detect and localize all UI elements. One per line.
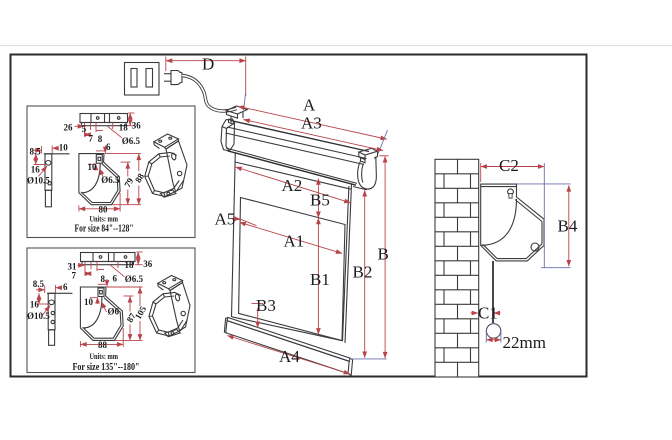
svg-text:36: 36 [143, 259, 153, 269]
svg-text:7: 7 [72, 271, 77, 281]
svg-text:16: 16 [31, 165, 41, 175]
svg-text:Ø6.5: Ø6.5 [125, 274, 144, 284]
svg-text:C2: C2 [499, 156, 519, 175]
svg-text:18: 18 [125, 260, 135, 270]
svg-text:Ø10.5: Ø10.5 [27, 176, 50, 186]
svg-text:8: 8 [98, 134, 103, 144]
svg-text:B1: B1 [310, 270, 330, 289]
svg-text:10: 10 [88, 162, 98, 172]
svg-text:B: B [378, 245, 389, 264]
svg-text:For size 135"--180": For size 135"--180" [73, 362, 140, 373]
svg-text:Ø6.5: Ø6.5 [101, 175, 120, 185]
svg-text:18: 18 [119, 122, 129, 132]
svg-text:6: 6 [63, 282, 68, 292]
svg-text:B5: B5 [310, 191, 330, 210]
svg-text:B4: B4 [558, 217, 578, 236]
svg-text:88: 88 [98, 340, 108, 350]
svg-text:A1: A1 [284, 232, 305, 251]
svg-text:22mm: 22mm [503, 333, 546, 352]
svg-text:B2: B2 [353, 263, 373, 282]
svg-text:8: 8 [101, 274, 106, 284]
svg-text:88: 88 [133, 171, 146, 184]
svg-text:26: 26 [64, 122, 74, 132]
svg-text:C1: C1 [478, 304, 498, 323]
svg-text:For size 84"--128": For size 84"--128" [75, 224, 134, 235]
svg-text:16: 16 [30, 299, 40, 309]
svg-text:A3: A3 [301, 114, 322, 133]
svg-text:Ø10.5: Ø10.5 [27, 311, 50, 321]
svg-text:Units: mm: Units: mm [90, 351, 119, 361]
svg-text:A5: A5 [215, 210, 236, 229]
svg-text:8.5: 8.5 [33, 279, 45, 289]
svg-text:7: 7 [89, 133, 94, 143]
svg-text:6: 6 [106, 142, 111, 152]
svg-text:10: 10 [59, 142, 69, 152]
svg-text:36: 36 [132, 121, 142, 131]
svg-text:Ø6.5: Ø6.5 [122, 136, 141, 146]
svg-text:D: D [202, 55, 214, 74]
svg-text:B3: B3 [256, 296, 276, 315]
svg-text:10: 10 [84, 297, 94, 307]
svg-text:A2: A2 [282, 176, 303, 195]
svg-text:Ø6: Ø6 [108, 306, 120, 316]
svg-text:A4: A4 [279, 347, 300, 366]
svg-text:5: 5 [82, 124, 87, 134]
svg-text:105: 105 [133, 304, 149, 321]
svg-text:8.5: 8.5 [30, 147, 42, 157]
svg-text:Units: mm: Units: mm [90, 214, 119, 224]
svg-text:A: A [303, 96, 316, 115]
svg-text:6: 6 [113, 273, 118, 283]
